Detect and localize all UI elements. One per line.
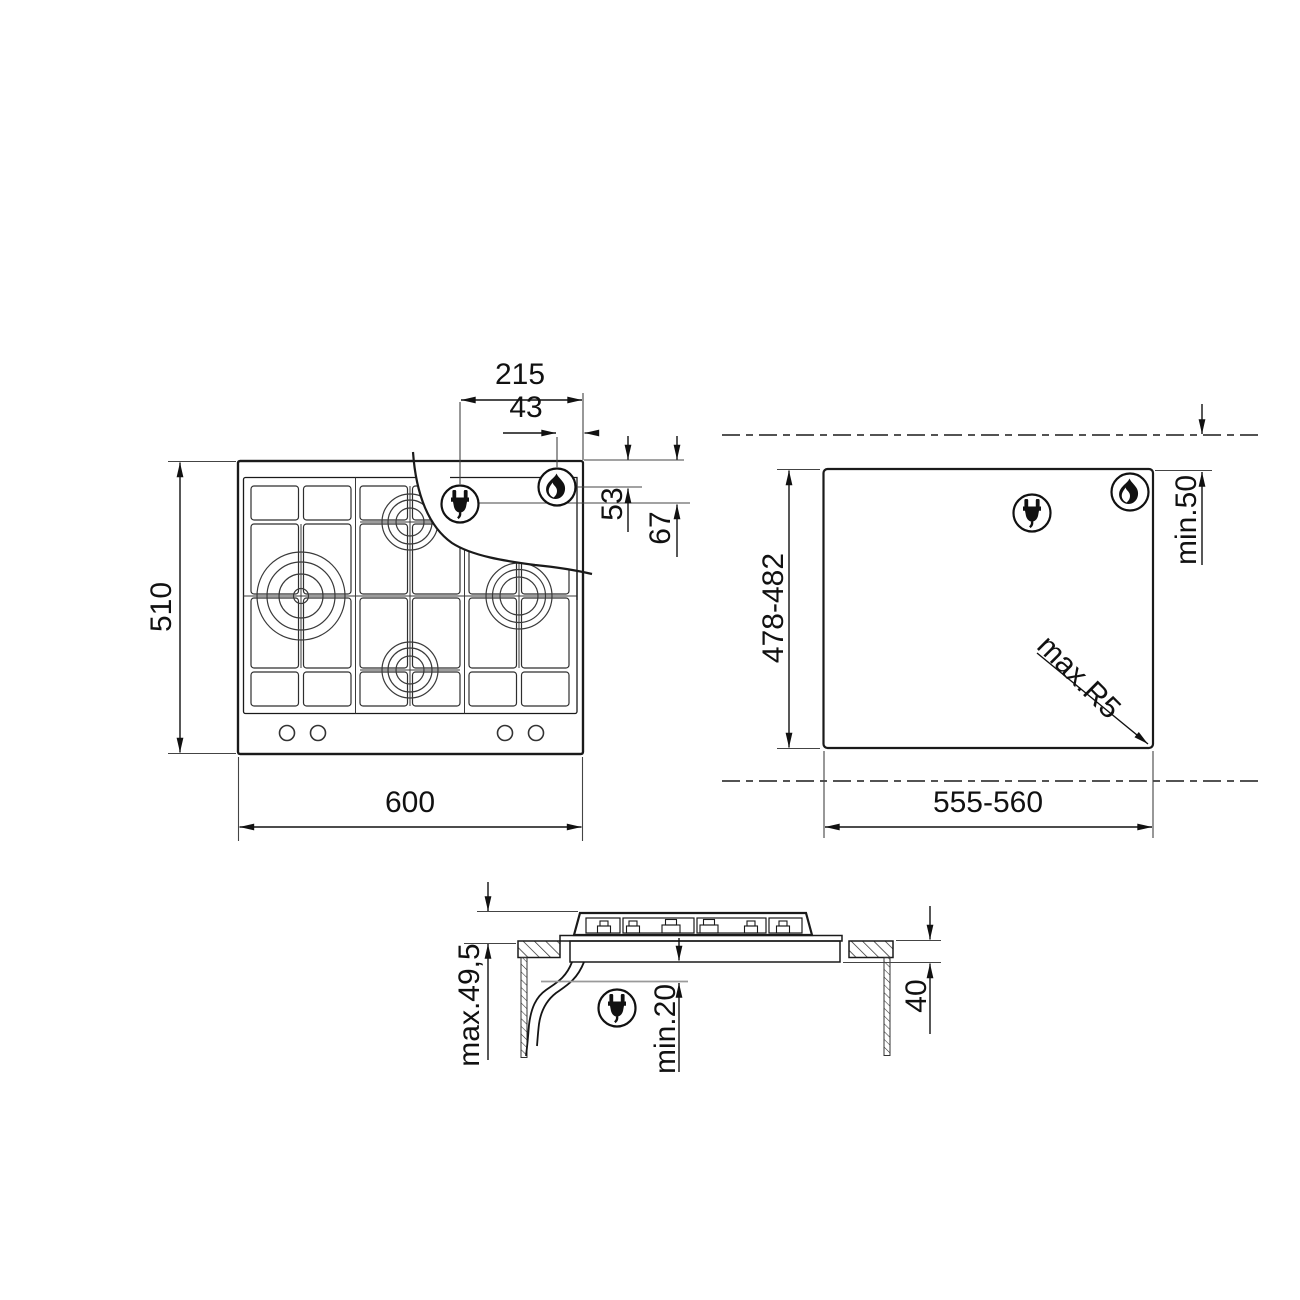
power-cable bbox=[537, 962, 584, 1046]
dim-label-plug-offset-y: 67 bbox=[644, 511, 677, 544]
dim-label-hob-width: 600 bbox=[385, 786, 435, 819]
burner-cap bbox=[629, 921, 637, 926]
burner-cap bbox=[666, 920, 677, 926]
dim-label-hob-depth: 510 bbox=[145, 582, 178, 632]
burner-cap bbox=[700, 925, 718, 933]
grid-cell bbox=[251, 524, 299, 594]
dim-label-flame-offset-y: 53 bbox=[596, 487, 629, 520]
grid-cell bbox=[304, 672, 352, 706]
burner-cap bbox=[777, 926, 790, 933]
burner-cap bbox=[600, 921, 608, 926]
knob bbox=[498, 726, 513, 741]
cabinet-wall bbox=[521, 958, 527, 1058]
cutaway-region bbox=[413, 450, 594, 574]
hob-top-sheet bbox=[560, 936, 842, 942]
grid-cell bbox=[413, 598, 461, 668]
side-section-view: max.49,5 min.20 40 bbox=[453, 882, 941, 1074]
dim-label-flame-offset-x: 43 bbox=[509, 391, 542, 424]
dim-label-plug-offset-x: 215 bbox=[495, 358, 545, 391]
grid-cell bbox=[360, 524, 408, 594]
burner-cap bbox=[779, 921, 787, 926]
grid-cell bbox=[360, 598, 408, 668]
worktop-section bbox=[518, 941, 560, 958]
installation-diagram: 215 43 53 67 510 600 478-482 bbox=[0, 0, 1300, 1300]
dim-label-cutout-depth: 478-482 bbox=[757, 553, 790, 663]
grid-cell bbox=[469, 598, 517, 668]
dim-label-worktop-thickness: 40 bbox=[900, 979, 933, 1012]
grid-cell bbox=[251, 486, 299, 520]
grid-cell bbox=[469, 672, 517, 706]
grid-cell bbox=[360, 486, 408, 520]
grid-cell bbox=[360, 672, 408, 706]
grid-cell bbox=[251, 598, 299, 668]
dim-label-cutout-width: 555-560 bbox=[933, 786, 1043, 819]
burner-cap bbox=[598, 926, 611, 933]
grid-cell bbox=[413, 672, 461, 706]
burner-cap bbox=[662, 925, 680, 933]
burner-cap bbox=[745, 926, 758, 933]
burner-boxes bbox=[586, 918, 802, 933]
burner-cap bbox=[747, 921, 755, 926]
power-plug-icon bbox=[599, 990, 636, 1027]
knob bbox=[280, 726, 295, 741]
burner-cap bbox=[627, 926, 640, 933]
burner-cap bbox=[704, 920, 715, 926]
worktop-cutout-view: 478-482 555-560 min.50 max.R5 bbox=[722, 404, 1258, 838]
grid-cell bbox=[522, 598, 570, 668]
control-knobs bbox=[280, 726, 544, 741]
dim-label-bottom-clearance: min.20 bbox=[649, 984, 682, 1074]
grid-cell bbox=[304, 524, 352, 594]
hob-body-section bbox=[570, 941, 840, 962]
dim-label-hob-height: max.49,5 bbox=[453, 943, 486, 1066]
power-cable bbox=[526, 962, 572, 1056]
hob-top-view: 215 43 53 67 510 600 bbox=[145, 358, 690, 841]
dim-label-rear-clearance: min.50 bbox=[1170, 475, 1203, 565]
power-plug-icon bbox=[1014, 495, 1051, 532]
diagram-canvas: 215 43 53 67 510 600 478-482 bbox=[0, 0, 1300, 1300]
grid-cell bbox=[522, 672, 570, 706]
knob bbox=[311, 726, 326, 741]
knob bbox=[529, 726, 544, 741]
grid-cell bbox=[304, 598, 352, 668]
worktop-section bbox=[849, 941, 893, 958]
cabinet-wall bbox=[884, 958, 890, 1056]
grid-cell bbox=[304, 486, 352, 520]
gas-flame-icon bbox=[539, 469, 576, 506]
dim-label-corner-radius: max.R5 bbox=[1031, 629, 1127, 725]
grid-cell bbox=[251, 672, 299, 706]
gas-flame-icon bbox=[1112, 474, 1149, 511]
power-plug-icon bbox=[442, 486, 479, 523]
